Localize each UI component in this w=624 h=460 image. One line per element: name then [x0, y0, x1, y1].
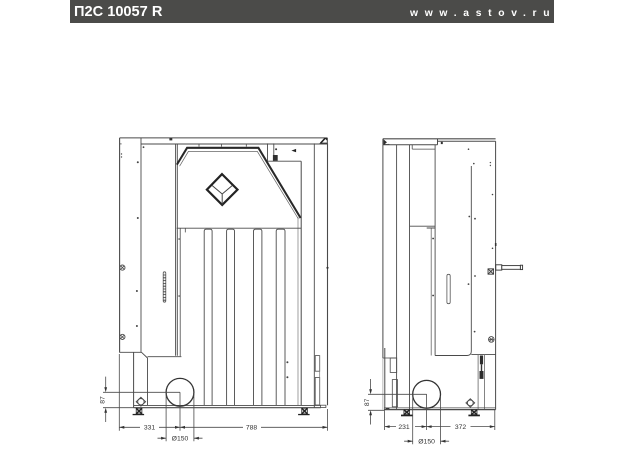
svg-text:231: 231 — [398, 424, 410, 431]
svg-text:372: 372 — [455, 424, 467, 431]
svg-text:331: 331 — [144, 425, 156, 432]
svg-text:Ø150: Ø150 — [172, 435, 189, 442]
svg-text:87: 87 — [100, 396, 107, 404]
svg-text:Ø150: Ø150 — [418, 438, 435, 445]
svg-text:788: 788 — [246, 425, 258, 432]
svg-text:87: 87 — [364, 398, 371, 406]
